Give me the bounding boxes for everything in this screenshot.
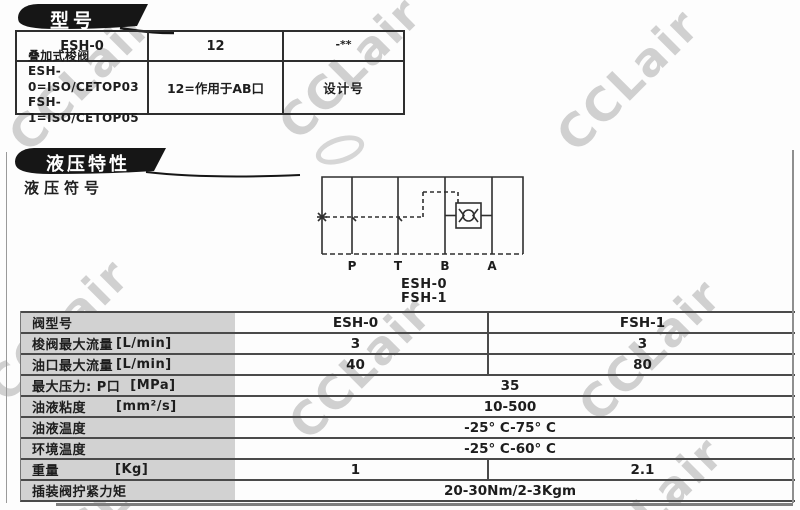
spec-unit: [MPa]: [130, 378, 175, 393]
spec-label: 重量: [32, 460, 59, 479]
spec-label-cell: 最大压力: P口[MPa]: [21, 376, 235, 395]
spec-value-shared: -25° C-75° C: [224, 418, 796, 437]
design-code-cell: -**: [284, 32, 403, 56]
spec-label: 插装阀拧紧力矩: [32, 481, 127, 500]
spec-label: 梭阀最大流量: [32, 334, 113, 353]
model-banner-title: 型号: [50, 6, 96, 33]
diagram-model-label-esh0: ESH-0: [401, 277, 447, 292]
spec-label: 油液粘度: [32, 397, 86, 416]
spec-value-shared: -25° C-60° C: [224, 439, 796, 458]
page-border-right: [792, 150, 794, 503]
port-label-p: P: [348, 259, 357, 273]
port-label-t: T: [394, 259, 403, 273]
spec-label: 油口最大流量: [32, 355, 113, 374]
spec-value-esh0: ESH-0: [224, 313, 487, 332]
spec-row: 最大压力: P口[MPa]35: [21, 374, 795, 395]
design-number-cell: 设计号: [284, 62, 403, 113]
hydraulic-banner-title: 液压特性: [46, 150, 130, 176]
spec-label: 环境温度: [32, 439, 86, 458]
spec-unit: [L/min]: [116, 336, 172, 351]
watermark-ring: [312, 130, 368, 170]
spec-value-shared: 10-500: [224, 397, 796, 416]
model-description-line: ESH-0=ISO/CETOP03: [28, 64, 147, 95]
spec-label-cell: 油口最大流量[L/min]: [21, 355, 235, 374]
model-description-line: FSH-1=ISO/CETOP05: [28, 95, 147, 126]
spec-table: 阀型号ESH-0FSH-1梭阀最大流量[L/min]33油口最大流量[L/min…: [20, 311, 795, 502]
model-option-cell: 12: [149, 32, 282, 60]
spec-value-fsh1: 3: [487, 334, 796, 353]
spec-value-fsh1: 2.1: [487, 460, 796, 479]
spec-row: 油口最大流量[L/min]4080: [21, 353, 795, 374]
spec-label-cell: 重量[Kg]: [21, 460, 235, 479]
spec-label-cell: 环境温度: [21, 439, 235, 458]
spec-unit: [Kg]: [115, 462, 148, 477]
hydraulic-symbol-label: 液压符号: [24, 177, 104, 198]
spec-row: 油液温度-25° C-75° C: [21, 416, 795, 437]
spec-label-cell: 油液温度: [21, 418, 235, 437]
spec-row: 阀型号ESH-0FSH-1: [21, 311, 795, 332]
port-label-b: B: [440, 259, 449, 273]
spec-row: 重量[Kg]12.1: [21, 458, 795, 479]
spec-value-esh0: 40: [224, 355, 487, 374]
spec-value-fsh1: FSH-1: [487, 313, 796, 332]
page-border-left: [6, 152, 7, 503]
option-description-cell: 12=作用于AB口: [149, 62, 282, 113]
datasheet-page: CCLairCCLairCCLairCCLairCCLairCCLairCCLa…: [0, 0, 800, 510]
spec-label: 油液温度: [32, 418, 86, 437]
spec-value-esh0: 3: [224, 334, 487, 353]
spec-unit: [L/min]: [116, 357, 172, 372]
spec-row: 梭阀最大流量[L/min]33: [21, 332, 795, 353]
page-border-bottom: [56, 503, 793, 506]
spec-value-shared: 35: [224, 376, 796, 395]
spec-value-fsh1: 80: [487, 355, 796, 374]
spec-value-esh0: 1: [224, 460, 487, 479]
spec-row: 环境温度-25° C-60° C: [21, 437, 795, 458]
spec-label: 阀型号: [32, 313, 73, 332]
spec-row: 插装阀拧紧力矩20-30Nm/2-3Kgm: [21, 479, 795, 500]
model-description-line: 叠加式梭阀: [28, 49, 90, 65]
spec-unit: [mm²/s]: [116, 399, 177, 414]
spec-label-cell: 梭阀最大流量[L/min]: [21, 334, 235, 353]
model-description-cell: 叠加式梭阀 ESH-0=ISO/CETOP03 FSH-1=ISO/CETOP0…: [17, 62, 147, 113]
watermark-text: CCLair: [546, 0, 710, 162]
spec-label: 最大压力: P口: [32, 376, 120, 395]
model-table: ESH-0 12 -** 叠加式梭阀 ESH-0=ISO/CETOP03 FSH…: [15, 30, 405, 115]
diagram-model-label-fsh1: FSH-1: [401, 291, 447, 306]
spec-label-cell: 油液粘度[mm²/s]: [21, 397, 235, 416]
spec-row: 油液粘度[mm²/s]10-500: [21, 395, 795, 416]
port-label-a: A: [487, 259, 497, 273]
spec-value-shared: 20-30Nm/2-3Kgm: [224, 481, 796, 500]
spec-label-cell: 插装阀拧紧力矩: [21, 481, 235, 500]
spec-label-cell: 阀型号: [21, 313, 235, 332]
